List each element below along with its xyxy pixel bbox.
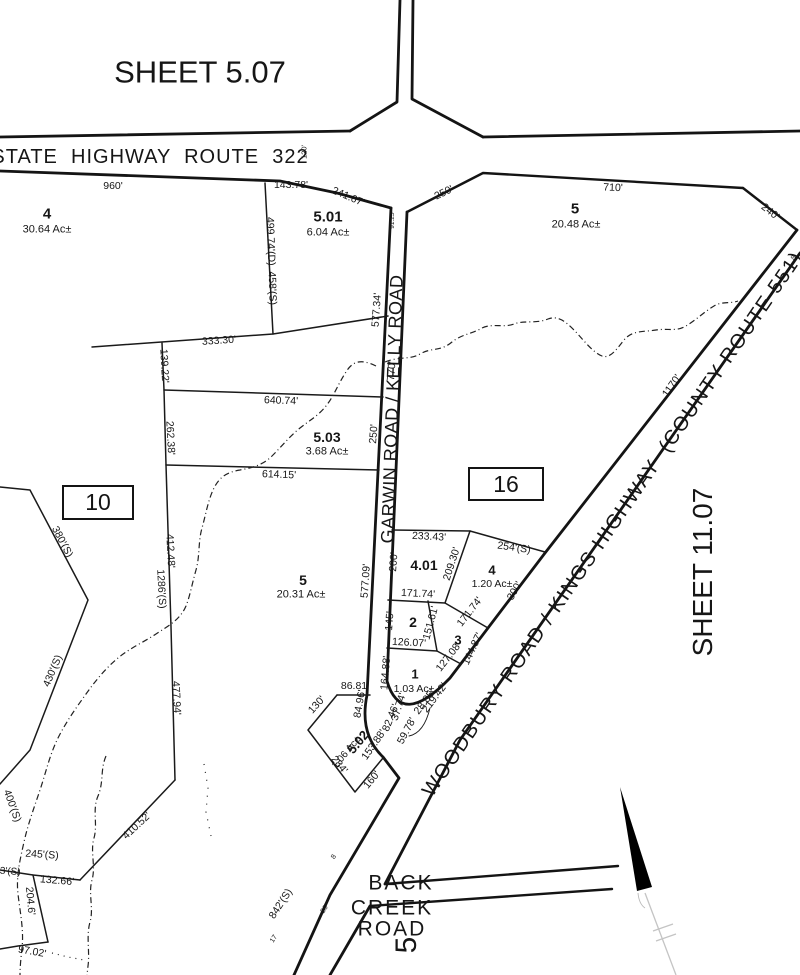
- dimension-label: 577.09': [360, 564, 373, 599]
- block-number-box-16: 16: [468, 467, 544, 501]
- dimension-label: 113'(S): [0, 866, 21, 878]
- dimension-label: 120': [300, 145, 308, 159]
- dimension-label: 1286'(S): [155, 569, 168, 609]
- dimension-label: 139.22': [158, 349, 170, 384]
- dimension-label: 770': [386, 361, 398, 381]
- parcel-acreage-label: 3.68 Ac±: [306, 447, 349, 458]
- dimension-label: 233.43': [412, 531, 447, 543]
- partial-road-label: 5: [392, 937, 422, 954]
- parcel-acreage-label: 30.64 Ac±: [23, 225, 72, 236]
- parcel-lot-label: 5: [299, 573, 307, 587]
- dimension-label: 614.15': [262, 469, 296, 481]
- dimension-label: 143.78': [274, 180, 308, 191]
- dimension-label: 171.74': [401, 588, 436, 600]
- dimension-label: 262.38': [164, 421, 176, 456]
- dimension-label: 200': [388, 552, 400, 572]
- road-label-route-322: STATE HIGHWAY ROUTE 322: [0, 147, 309, 167]
- parcel-lot-label: 4: [43, 207, 51, 222]
- sheet-label-right: SHEET 11.07: [689, 488, 717, 657]
- dimension-label: 960': [103, 181, 123, 192]
- road-label-creek: CREEK: [351, 898, 433, 919]
- dimension-label: 132.66': [40, 874, 75, 887]
- road-label-back: BACK: [368, 873, 433, 894]
- parcel-lot-label: 5.03: [313, 430, 340, 444]
- dimension-label: 245'(S): [25, 849, 59, 862]
- parcel-acreage-label: 6.04 Ac±: [307, 228, 350, 239]
- parcel-lot-label: 5.01: [313, 210, 342, 225]
- dimension-label: 412.48': [164, 534, 176, 569]
- dimension-label: 91.25': [390, 211, 397, 229]
- parcel-lot-label: 5: [571, 202, 579, 217]
- dimension-label: 333.30': [202, 335, 237, 348]
- dimension-label: 204.6': [24, 886, 37, 915]
- north-arrow-icon: [620, 787, 676, 975]
- parcel-lot-label: 4.01: [410, 558, 437, 572]
- parcel-acreage-label: 20.48 Ac±: [552, 220, 601, 231]
- parcel-lot-label: 2: [409, 615, 417, 629]
- dimension-label: 126.07': [392, 637, 427, 649]
- sheet-label-top: SHEET 5.07: [114, 57, 286, 88]
- dimension-label: 164.88': [379, 656, 392, 691]
- dimension-label: 250': [368, 424, 380, 444]
- dimension-label: 145': [384, 611, 396, 631]
- dimension-label: 577.34': [371, 293, 384, 328]
- parcel-acreage-label: 1.20 Ac±: [472, 579, 513, 590]
- block-number: 16: [493, 471, 519, 498]
- parcel-acreage-label: 20.31 Ac±: [277, 590, 326, 601]
- parcel-lot-label: 4: [488, 564, 495, 577]
- block-number: 10: [85, 489, 111, 516]
- parcel-lot-label: 1: [411, 668, 418, 681]
- dimension-label: 640.74': [264, 395, 298, 407]
- dimension-label: 710': [603, 182, 623, 193]
- dimension-label: 499.74'(D) 458'(S): [264, 217, 278, 305]
- dimension-label: 477.94': [170, 681, 182, 716]
- tax-map-canvas: 10 16 SHEET 5.07STATE HIGHWAY ROUTE 322S…: [0, 0, 800, 975]
- block-number-box-10: 10: [62, 485, 134, 520]
